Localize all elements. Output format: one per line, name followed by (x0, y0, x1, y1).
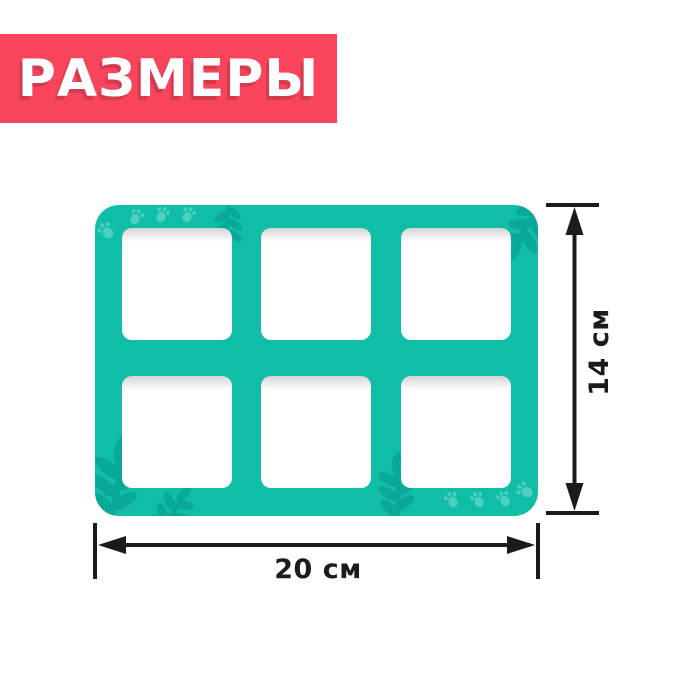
arrowhead-left-icon (98, 536, 126, 554)
arrowhead-down-icon (566, 483, 584, 511)
banner-title: РАЗМЕРЫ (18, 49, 320, 109)
cavity (261, 376, 371, 488)
product-size-infographic: РАЗМЕРЫ (0, 0, 700, 700)
height-dimension-label: 14 см (581, 272, 617, 432)
sorter-board (95, 205, 538, 516)
cavity (122, 228, 232, 340)
width-dimension-label: 20 см (198, 552, 438, 588)
cavity (122, 376, 232, 488)
size-banner: РАЗМЕРЫ (0, 34, 337, 123)
cavity (401, 376, 511, 488)
cavity (261, 228, 371, 340)
cavity (401, 228, 511, 340)
arrowhead-up-icon (566, 207, 584, 235)
arrowhead-right-icon (507, 536, 535, 554)
